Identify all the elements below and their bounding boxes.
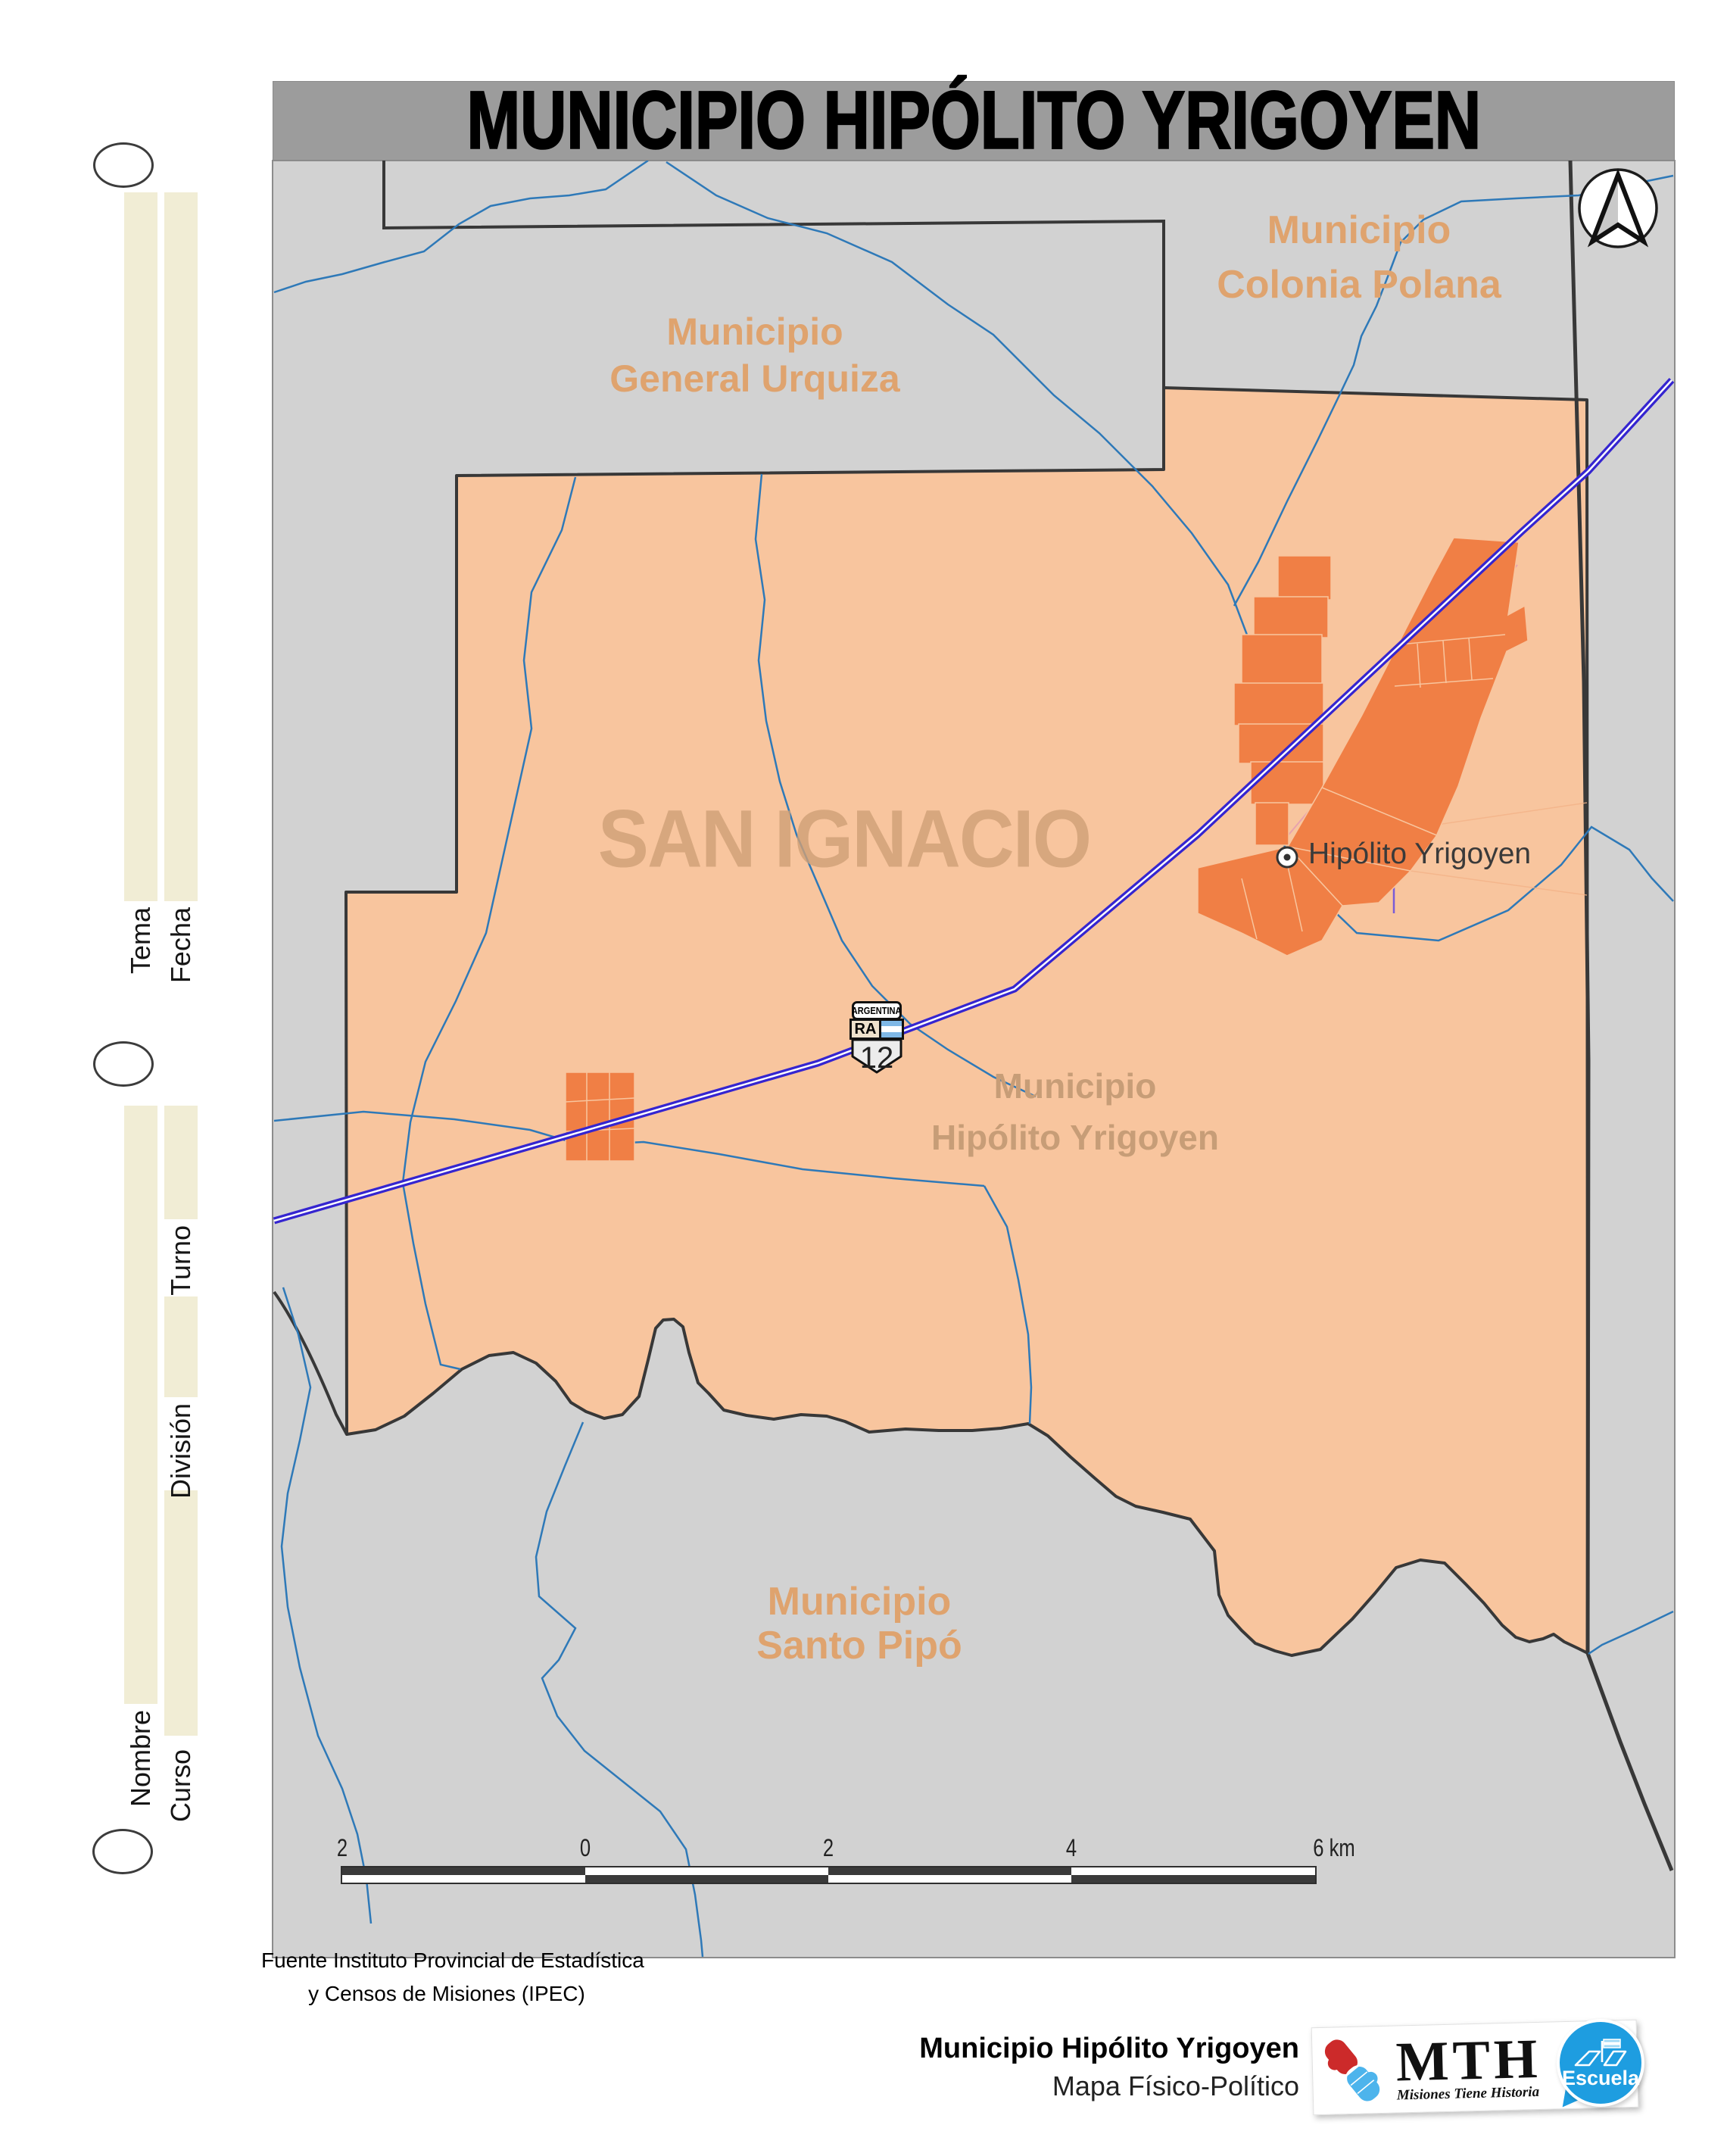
scale-label-2: 2	[823, 1834, 834, 1862]
scale-label-1: 0	[580, 1834, 591, 1862]
field-label-fecha: Fecha	[164, 907, 198, 1021]
escuela-badge: Escuela	[1557, 2019, 1644, 2107]
route-12-shield: ARGENTINA RA 12	[849, 1001, 904, 1075]
footer-map-name: Municipio Hipólito Yrigoyen	[845, 2033, 1299, 2065]
region-label-general-urquiza: Municipio General Urquiza	[490, 308, 1020, 402]
map-title: MUNICIPIO HIPÓLITO YRIGOYEN	[466, 74, 1481, 167]
misiones-shape-icon	[1312, 2027, 1393, 2114]
field-line-curso	[164, 1490, 198, 1736]
field-label-tema: Tema	[124, 907, 157, 1021]
punch-hole-middle	[93, 1041, 154, 1087]
argentina-flag-icon	[881, 1019, 904, 1040]
scale-bar	[341, 1867, 1316, 1883]
scale-label-3: 4	[1066, 1834, 1077, 1862]
mth-tagline: Misiones Tiene Historia	[1397, 2084, 1542, 2105]
town-label: Hipólito Yrigoyen	[1308, 838, 1531, 871]
field-label-curso: Curso	[164, 1749, 198, 1863]
field-line-fecha	[164, 192, 198, 901]
department-watermark: SAN IGNACIO	[585, 793, 1103, 886]
field-label-nombre: Nombre	[124, 1710, 157, 1824]
school-icon	[1571, 2036, 1630, 2068]
route-shield-country-box: ARGENTINA	[852, 1001, 902, 1020]
escuela-label: Escuela	[1562, 2067, 1639, 2090]
field-line-tema	[124, 192, 157, 901]
field-line-turno	[164, 1106, 198, 1219]
town-marker-dot	[1284, 854, 1291, 861]
field-label-turno: Turno	[164, 1225, 198, 1339]
punch-hole-top	[93, 142, 154, 188]
scale-label-0: 2	[337, 1834, 348, 1862]
source-line2: y Censos de Misiones (IPEC)	[261, 1978, 632, 2010]
field-line-nombre	[124, 1106, 157, 1704]
region-label-santo-pipo: Municipio Santo Pipó	[632, 1580, 1086, 1668]
route-number: 12	[849, 1041, 904, 1075]
punch-hole-bottom	[92, 1829, 153, 1874]
mth-abbr: MTH	[1395, 2031, 1542, 2091]
source-line1: Fuente Instituto Provincial de Estadísti…	[261, 1945, 644, 1977]
route-shield-code-box: RA	[849, 1019, 881, 1040]
north-arrow-icon	[1579, 170, 1657, 247]
region-label-hipolito-yrigoyen: Municipio Hipólito Yrigoyen	[871, 1060, 1280, 1163]
map-title-bar: MUNICIPIO HIPÓLITO YRIGOYEN	[273, 81, 1675, 161]
region-label-colonia-polana: Municipio Colonia Polana	[1170, 203, 1548, 312]
scale-label-4: 6 km	[1313, 1834, 1354, 1862]
footer-map-type: Mapa Físico-Político	[845, 2070, 1299, 2102]
field-label-division: División	[164, 1403, 198, 1517]
